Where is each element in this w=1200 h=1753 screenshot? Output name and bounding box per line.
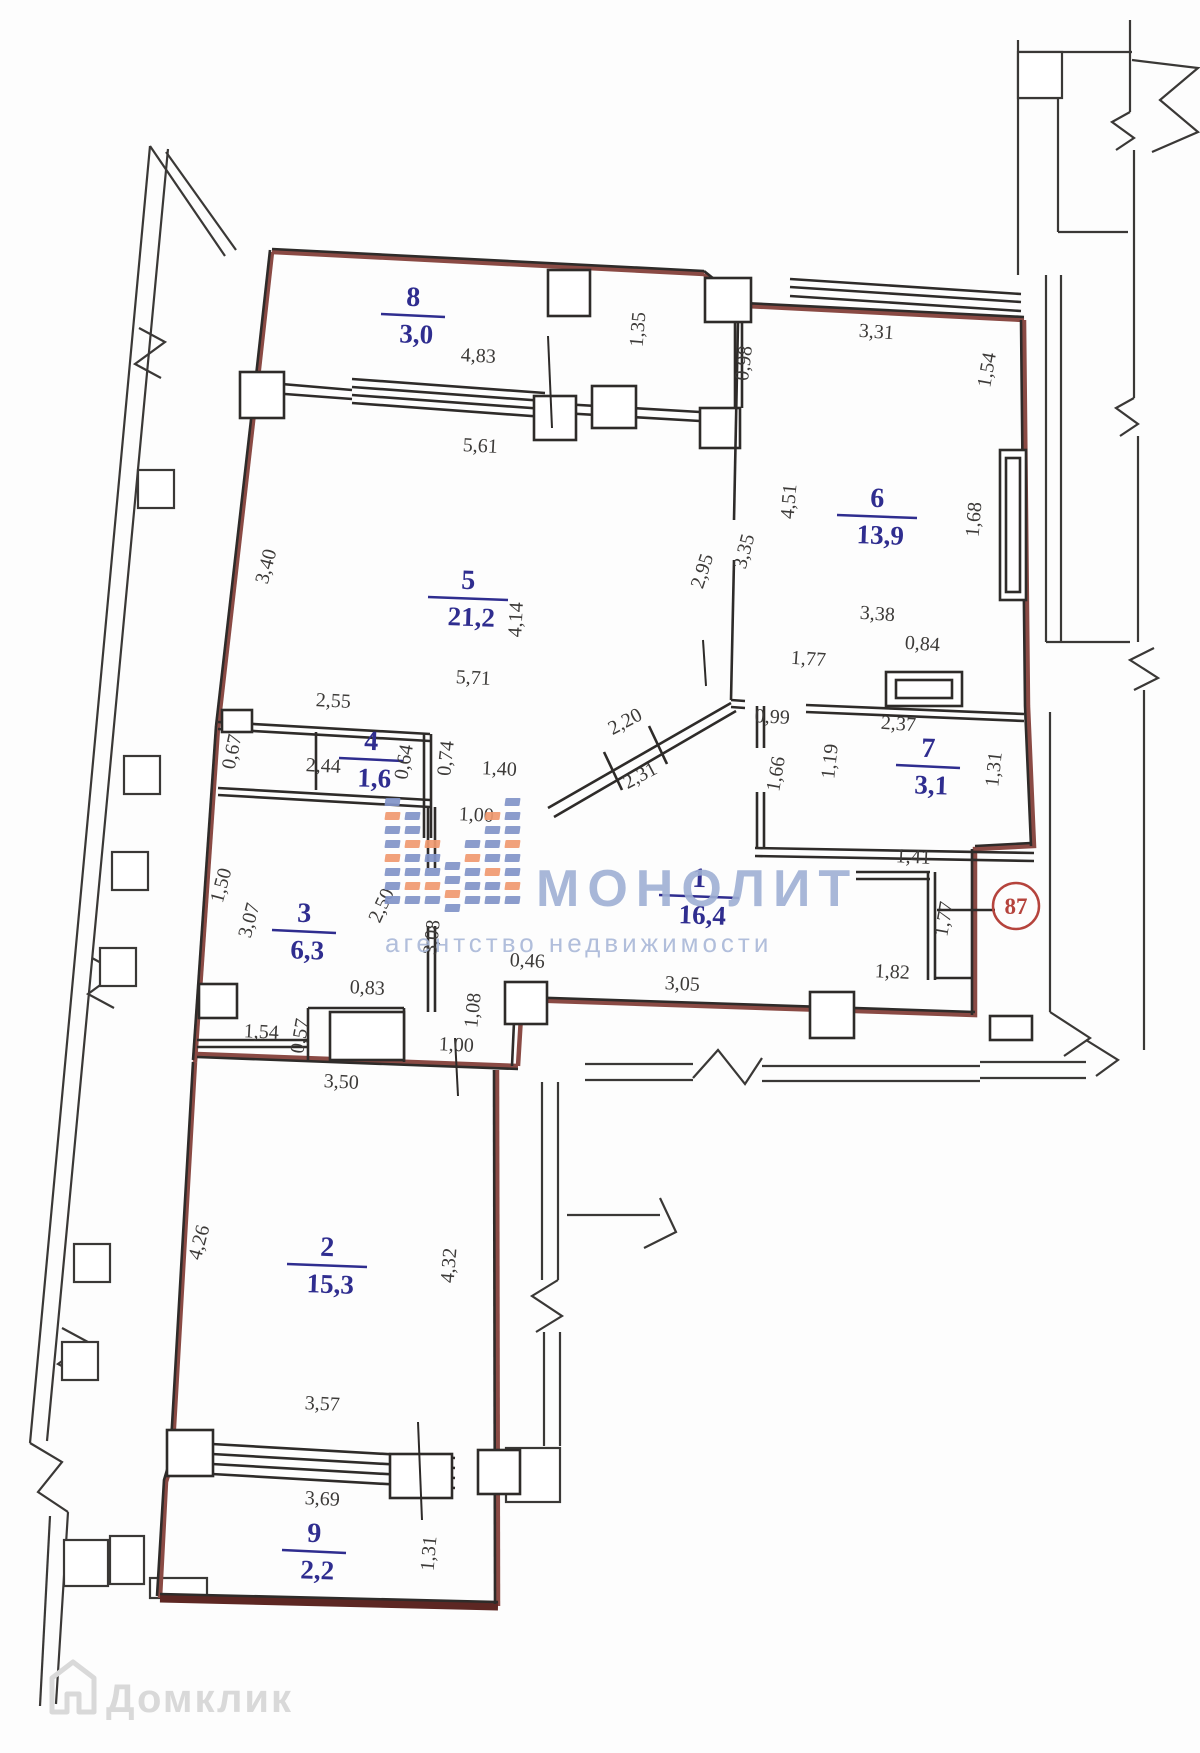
floor-plan-page: 87 83,0613,9521,241,673,1116,436,3215,39… [0,0,1200,1753]
dimension-label: 3,38 [859,602,895,626]
dimension-label: 3,07 [234,901,264,941]
logo-dash [444,890,460,898]
dimension-label: 1,41 [895,845,931,869]
logo-dash [504,882,520,890]
room-number-label: 7 [921,733,936,764]
watermark-footer: Домклик [106,1677,293,1721]
dimension-label: 2,50 [364,885,399,926]
room-label-underline [287,1264,367,1267]
dimension-label: 1,31 [417,1535,442,1572]
dimension-label: 4,26 [184,1223,214,1263]
dimension-label: 2,20 [605,704,646,740]
dimension-label: 2,55 [315,689,351,713]
domclick-watermark: Домклик [52,1662,293,1721]
dimension-label: 0,83 [349,976,385,1000]
room-area-label: 21,2 [447,601,495,633]
dimension-label: 2,44 [305,754,341,778]
dimension-label: 1,68 [962,501,987,538]
logo-dash [484,854,500,862]
logo-dash [404,826,420,834]
dimension-label: 1,00 [438,1033,474,1057]
dimension-label: 1,54 [973,351,1001,389]
logo-dash [444,876,460,884]
logo-dash [384,896,400,904]
dimension-label: 3,69 [304,1487,340,1511]
dimension-label: 4,32 [437,1247,462,1284]
dimension-label: 0,84 [904,632,940,656]
dimension-label: 1,08 [460,992,486,1029]
room-number-label: 3 [297,898,312,929]
dimension-label: 5,71 [455,666,491,690]
dimension-label: 0,64 [390,743,418,781]
logo-dash [384,826,400,834]
dimension-label: 4,14 [504,602,528,638]
unit-badge-number: 87 [1005,894,1028,919]
room-area-label: 13,9 [856,519,904,551]
dimension-label: 2,37 [880,712,916,736]
logo-dash [464,854,480,862]
room-area-label: 3,1 [914,769,949,800]
room-number-label: 9 [307,1518,322,1549]
monolit-logo-icon [384,798,520,912]
room-number-label: 8 [406,282,421,313]
room-label-underline [282,1550,346,1553]
unit-badge: 87 [993,883,1039,929]
logo-dash [384,882,400,890]
watermark-brand-subtitle: агентство недвижимости [385,928,772,958]
dimension-label: 1,40 [481,757,517,781]
logo-dash [384,812,400,820]
room-label-underline [837,515,917,518]
room-area-label: 1,6 [357,762,392,793]
dimension-label: 4,51 [777,483,802,520]
logo-dash [464,896,480,904]
dimension-label: 3,35 [729,532,759,572]
floor-plan-svg: 87 83,0613,9521,241,673,1116,436,3215,39… [0,0,1200,1753]
logo-dash [464,882,480,890]
watermark-brand: МОНОЛИТ [536,860,858,918]
logo-dash [484,896,500,904]
dimension-label: 1,77 [790,647,826,671]
logo-dash [484,840,500,848]
dimension-label: 1,35 [626,311,651,348]
dimension-label: 1,82 [874,960,910,984]
logo-dash [424,896,440,904]
room-area-label: 2,2 [300,1554,335,1585]
dimension-label: 0,67 [218,732,247,771]
dimension-label: 2,95 [686,551,718,591]
room-label-underline [428,597,508,600]
dimension-label: 1,77 [930,900,958,938]
room-area-label: 6,3 [290,934,325,965]
logo-dash [424,854,440,862]
dimension-label: 0,57 [286,1017,314,1055]
logo-dash [504,840,520,848]
room-label-underline [381,314,445,317]
dimension-label: 1,50 [206,866,236,906]
logo-dash [464,840,480,848]
logo-dash [384,868,400,876]
logo-dash [384,854,400,862]
dimension-label: 0,74 [433,740,459,777]
dimension-label: 4,83 [460,344,496,368]
logo-dash [464,868,480,876]
logo-dash [444,862,460,870]
dimension-label: 3,40 [251,547,281,587]
room-number-label: 5 [461,565,476,596]
dimension-label: 1,19 [817,743,843,780]
logo-dash [484,812,500,820]
logo-dash [444,904,460,912]
room-number-label: 6 [870,483,885,514]
logo-dash [504,826,520,834]
logo-dash [424,840,440,848]
dimension-label: 1,66 [762,755,790,793]
dimension-label: 5,61 [462,434,498,458]
dimension-label: 3,57 [304,1392,340,1416]
logo-dash [504,812,520,820]
logo-dash [504,854,520,862]
logo-dash [404,896,420,904]
logo-dash [384,798,400,806]
logo-dash [404,868,420,876]
logo-dash [424,882,440,890]
logo-dash [504,868,520,876]
logo-dash [384,840,400,848]
logo-dash [504,896,520,904]
logo-dash [424,868,440,876]
dimension-label: 3,50 [323,1070,359,1094]
logo-dash [504,798,520,806]
logo-dash [484,868,500,876]
room-number-label: 4 [364,726,379,757]
dimension-label: 0,98 [731,345,757,382]
logo-dash [484,882,500,890]
logo-dash [404,854,420,862]
room-label-underline [896,765,960,768]
logo-dash [404,840,420,848]
room-area-label: 15,3 [306,1268,354,1300]
logo-dash [404,882,420,890]
logo-dash [404,812,420,820]
dimension-label: 3,31 [858,320,894,344]
apartment-walls [157,249,1034,1604]
dimension-label: 0,99 [754,705,790,729]
logo-dash [484,826,500,834]
room-area-label: 3,0 [399,318,434,349]
room-number-label: 2 [320,1232,335,1263]
room-label-underline [272,930,336,933]
dimension-label: 1,54 [243,1020,279,1044]
dimension-label: 3,05 [664,972,700,996]
dimension-label: 1,31 [981,751,1007,788]
